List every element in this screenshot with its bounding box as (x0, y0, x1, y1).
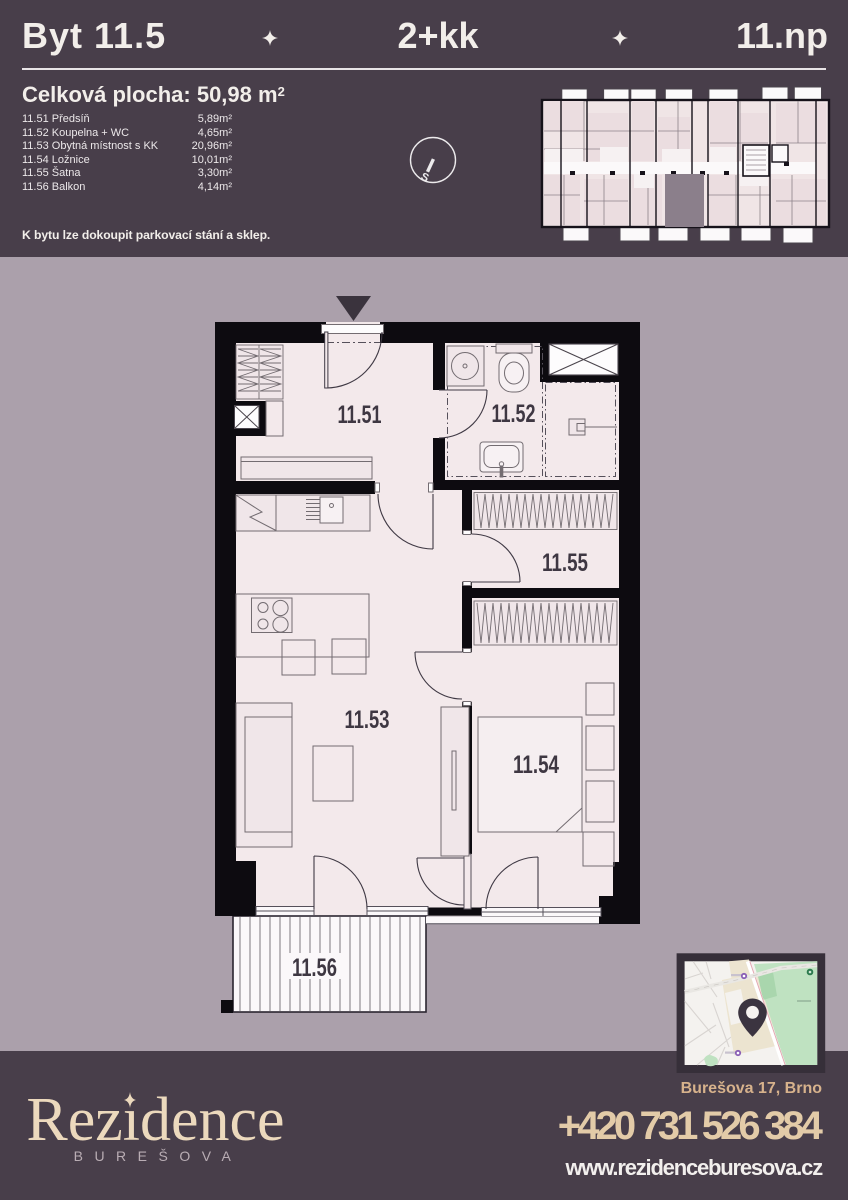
svg-text:11.54: 11.54 (513, 751, 559, 779)
svg-text:11.56: 11.56 (292, 954, 337, 982)
svg-text:11.51: 11.51 (338, 401, 382, 429)
svg-text:11.53: 11.53 (345, 706, 390, 734)
svg-text:11.52: 11.52 (492, 400, 536, 428)
svg-text:11.55: 11.55 (542, 549, 588, 577)
